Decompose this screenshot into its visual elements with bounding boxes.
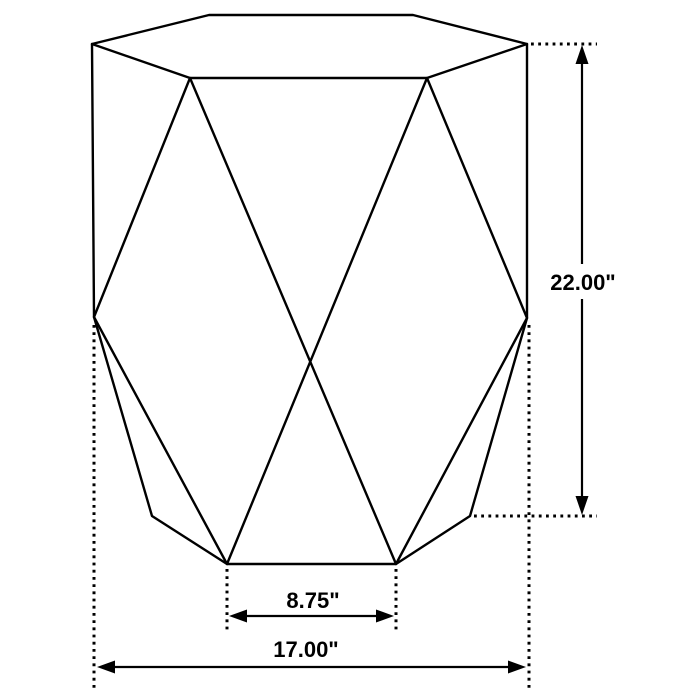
width-arrowhead-left-icon <box>97 661 115 674</box>
table-top-hexagon <box>92 15 527 78</box>
dimension-diagram: 22.00" 17.00" 8.75" <box>0 0 700 700</box>
base-arrowhead-right-icon <box>376 610 394 623</box>
base-edge-dimension: 8.75" <box>229 588 394 623</box>
extension-lines <box>94 44 597 689</box>
height-dimension-label: 22.00" <box>550 270 615 295</box>
height-arrowhead-down-icon <box>576 496 589 515</box>
table-line-drawing: 22.00" 17.00" 8.75" <box>0 0 700 700</box>
base-arrowhead-left-icon <box>229 610 247 623</box>
table-body <box>92 15 527 564</box>
width-arrowhead-right-icon <box>508 661 526 674</box>
width-dimension-label: 17.00" <box>273 637 338 662</box>
height-arrowhead-up-icon <box>576 45 589 64</box>
height-dimension: 22.00" <box>550 45 615 515</box>
base-dimension-label: 8.75" <box>286 588 339 613</box>
overall-width-dimension: 17.00" <box>97 637 526 674</box>
table-facet-edges <box>92 44 527 564</box>
